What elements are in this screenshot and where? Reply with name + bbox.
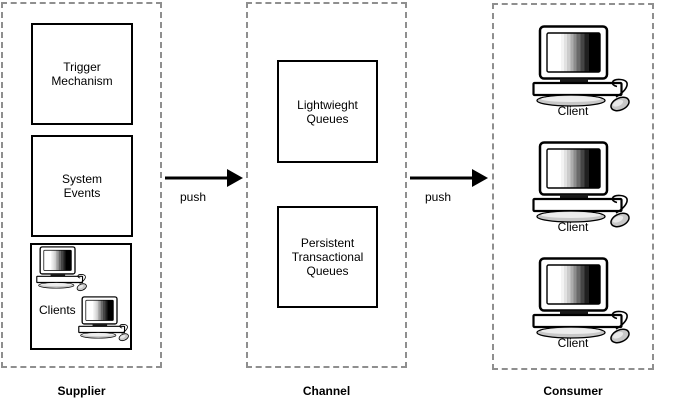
supplier-section-label: Supplier xyxy=(1,384,162,398)
persistent-queues-box: Persistent Transactional Queues xyxy=(277,206,378,308)
persistent-queues-label: Persistent Transactional Queues xyxy=(292,236,364,278)
desktop-computer-icon xyxy=(78,296,130,343)
lightweight-queues-box: Lightwieght Queues xyxy=(277,60,378,163)
client-label: Client xyxy=(494,336,652,350)
desktop-computer-icon xyxy=(532,141,632,231)
push-arrow xyxy=(164,168,244,188)
client-label: Client xyxy=(494,104,652,118)
push-arrow xyxy=(409,168,489,188)
supplier-region: Trigger Mechanism System Events Clients xyxy=(1,2,162,368)
lightweight-queues-label: Lightwieght Queues xyxy=(297,98,358,126)
desktop-computer-icon xyxy=(36,246,88,293)
system-events-box: System Events xyxy=(31,135,133,237)
clients-label: Clients xyxy=(39,303,76,317)
system-events-label: System Events xyxy=(62,172,102,200)
trigger-mechanism-label: Trigger Mechanism xyxy=(51,60,112,88)
clients-box: Clients xyxy=(30,243,132,350)
desktop-computer-icon xyxy=(532,25,632,115)
desktop-computer-icon xyxy=(532,257,632,347)
consumer-section-label: Consumer xyxy=(492,384,654,398)
trigger-mechanism-box: Trigger Mechanism xyxy=(31,23,133,125)
push-arrow-label: push xyxy=(408,190,468,204)
diagram-canvas: Trigger Mechanism System Events Clients … xyxy=(0,0,679,404)
push-arrow-label: push xyxy=(163,190,223,204)
channel-section-label: Channel xyxy=(246,384,407,398)
consumer-region: Client Client Client xyxy=(492,3,654,370)
channel-region: Lightwieght Queues Persistent Transactio… xyxy=(246,2,407,368)
client-label: Client xyxy=(494,220,652,234)
